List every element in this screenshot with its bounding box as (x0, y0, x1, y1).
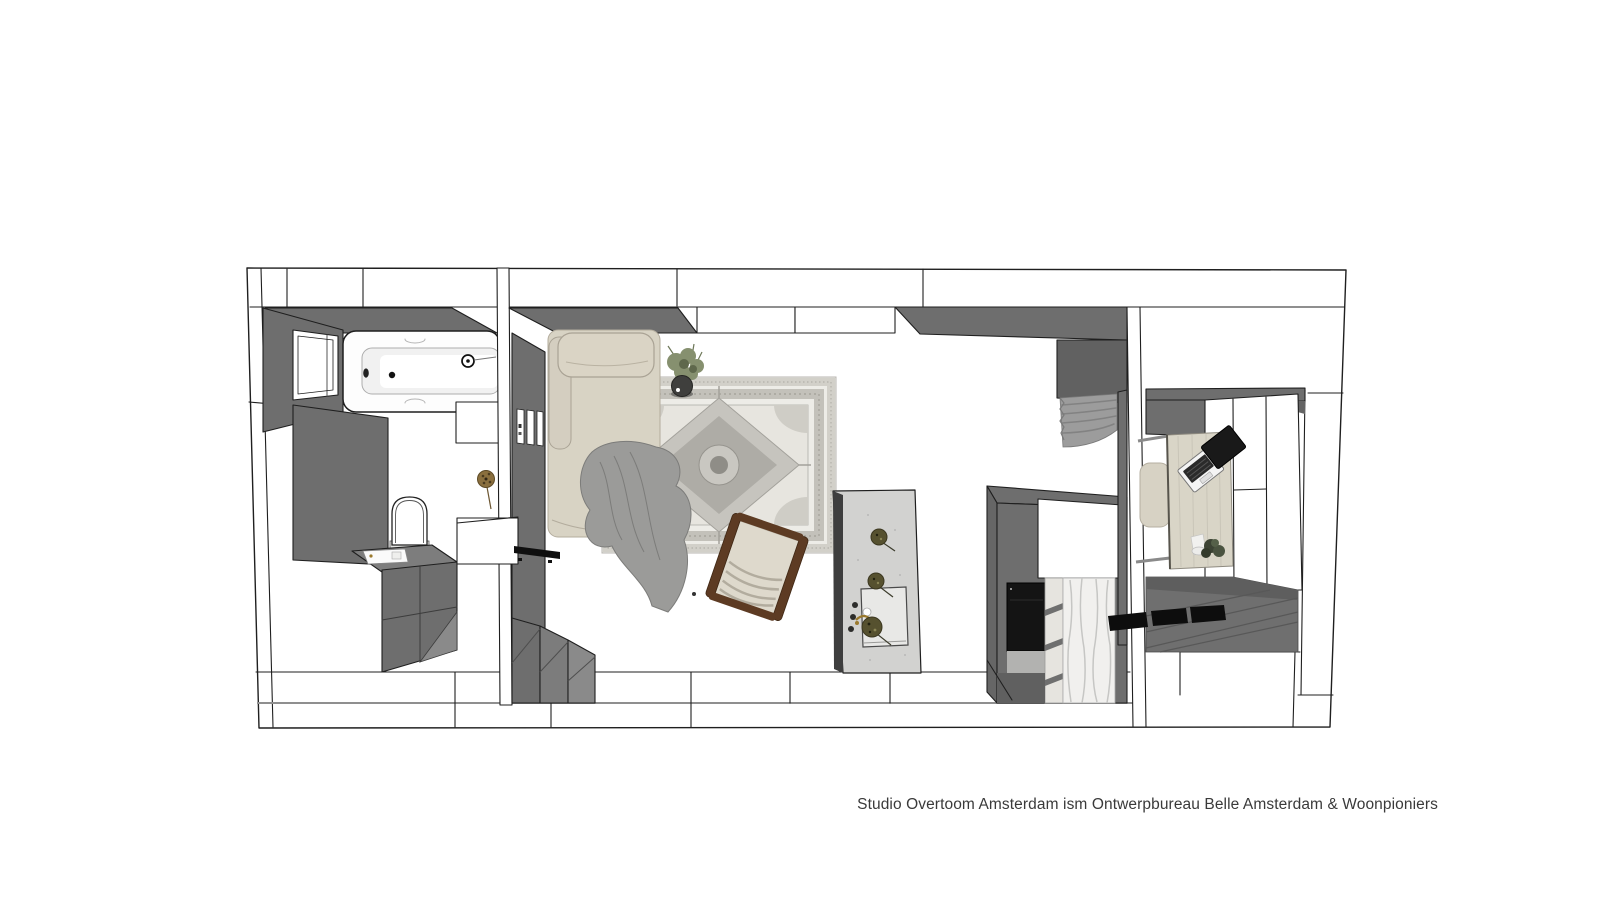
bathroom-window (293, 330, 338, 400)
kitchen-block (987, 486, 1127, 703)
bathroom-niche (456, 402, 500, 443)
marble-panel (1063, 578, 1115, 703)
island-knob (852, 602, 858, 608)
floor-speck (692, 592, 696, 596)
hall-cabinet (457, 518, 518, 564)
kitchen-island (833, 490, 921, 673)
interior-window (517, 409, 543, 446)
sink-faucet-icon (369, 554, 372, 557)
island-knob (848, 626, 854, 632)
plant-pot (672, 376, 693, 397)
floor-plan-canvas (0, 0, 1600, 900)
upper-cabinet (1038, 499, 1122, 578)
daybed-pillow (558, 333, 654, 377)
oven (1007, 583, 1046, 651)
floor-plan-svg (0, 0, 1600, 900)
bathroom-lower-west-wall (293, 405, 388, 565)
bathtub-drain-icon (389, 372, 395, 378)
island-knob (850, 614, 856, 620)
toilet (390, 497, 429, 550)
caption: Studio Overtoom Amsterdam ism Ontwerpbur… (857, 796, 1438, 814)
bathtub (343, 331, 500, 412)
